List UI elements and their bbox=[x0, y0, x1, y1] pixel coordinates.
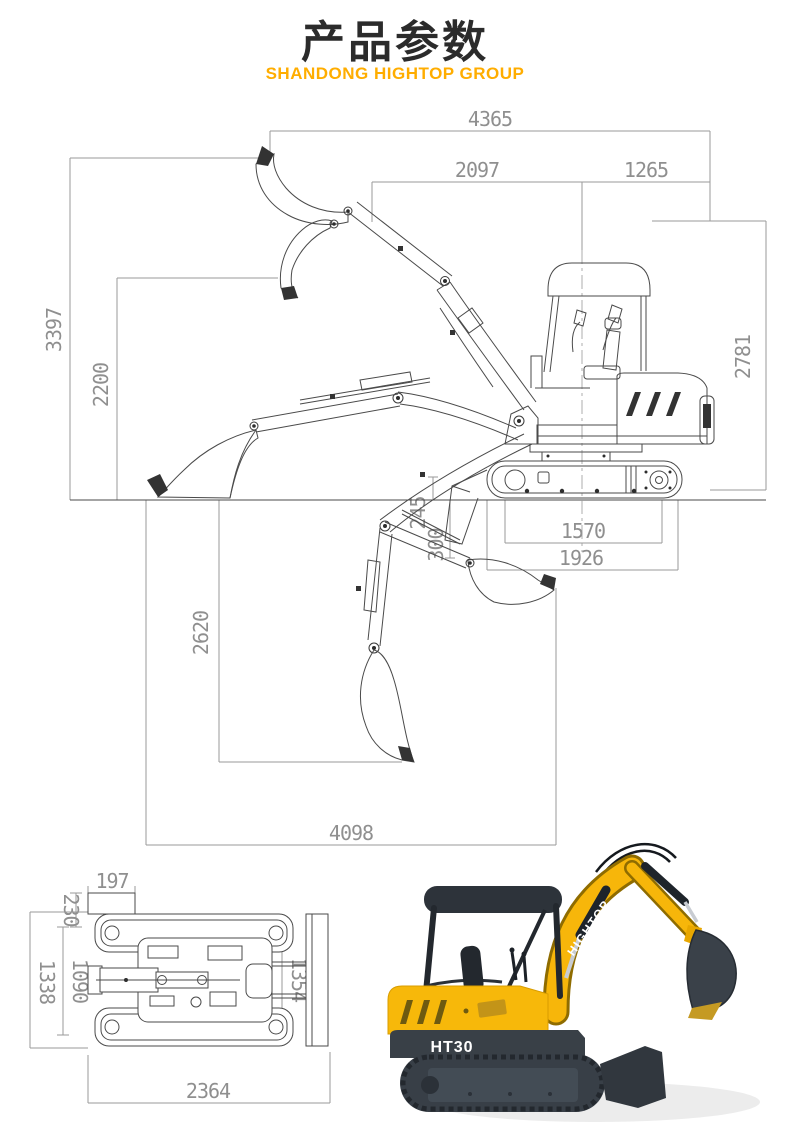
dim-2364: 2364 bbox=[186, 1079, 231, 1103]
dim-2781: 2781 bbox=[731, 335, 755, 379]
photo-tracks bbox=[400, 1054, 605, 1112]
dim-245: 245 bbox=[406, 496, 430, 529]
dozer-blade-side bbox=[445, 470, 487, 544]
dim-2620: 2620 bbox=[189, 611, 213, 655]
arm-config-ground-left bbox=[147, 372, 518, 498]
model-decal: HT30 bbox=[430, 1039, 473, 1056]
arm-config-depth bbox=[356, 434, 556, 762]
excavator-photo: HIGHTOP bbox=[388, 844, 760, 1122]
tensioner-block bbox=[88, 893, 135, 914]
dim-197: 197 bbox=[95, 869, 128, 893]
dim-1265: 1265 bbox=[624, 158, 668, 182]
cab-canopy bbox=[531, 263, 650, 388]
dim-1338: 1338 bbox=[35, 960, 59, 1004]
dim-1926: 1926 bbox=[559, 546, 603, 570]
photo-canopy bbox=[424, 886, 562, 996]
photo-boom-arm: HIGHTOP bbox=[556, 844, 702, 1012]
dim-300: 300 bbox=[424, 528, 448, 561]
plan-seat bbox=[246, 964, 272, 998]
photo-frame: HT30 bbox=[390, 1030, 585, 1058]
dim-2200: 2200 bbox=[89, 363, 113, 407]
upper-body bbox=[537, 373, 714, 444]
dim-4098: 4098 bbox=[329, 821, 373, 845]
dim-3397: 3397 bbox=[42, 308, 66, 352]
photo-dozer-blade bbox=[600, 1046, 666, 1108]
arm-config-max-height bbox=[256, 146, 536, 410]
dim-2097: 2097 bbox=[455, 158, 499, 182]
photo-bucket bbox=[687, 930, 736, 1020]
photo-body bbox=[388, 986, 548, 1034]
dim-230: 230 bbox=[59, 893, 83, 926]
side-view-drawing bbox=[70, 146, 766, 762]
dim-4365: 4365 bbox=[468, 107, 512, 131]
dim-1570: 1570 bbox=[561, 519, 605, 543]
page: 产品参数 SHANDONG HIGHTOP GROUP 4365 2097 12… bbox=[0, 0, 790, 1144]
side-view-dimensions: 4365 2097 1265 3397 2200 2781 245 300 15… bbox=[42, 107, 766, 845]
diagram-canvas: 4365 2097 1265 3397 2200 2781 245 300 15… bbox=[0, 0, 790, 1144]
